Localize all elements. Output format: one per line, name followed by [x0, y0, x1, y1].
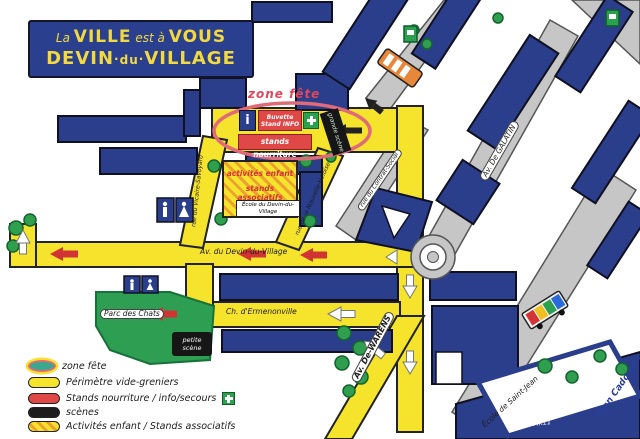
legend-label: Stands nourriture / info/secours: [66, 393, 216, 404]
activites-swatch: [28, 421, 60, 432]
stands-swatch: [28, 393, 60, 404]
title-word: VILLAGE: [144, 48, 236, 69]
legend-item-zone-fete: zone fête: [28, 360, 106, 372]
title-word: VOUS: [169, 27, 226, 47]
legend-item-perimetre: Périmètre vide-greniers: [28, 377, 178, 388]
buvette-stand-info-box: Buvette Stand INFO: [258, 110, 302, 131]
title-line-2: DEVIN·du·VILLAGE: [30, 48, 252, 69]
title-word: DEVIN: [46, 48, 114, 69]
legend-item-scenes: scènes: [28, 407, 99, 418]
festival-map-poster: La VILLE est à VOUS DEVIN·du·VILLAGE zon…: [0, 0, 640, 439]
legend-label: scènes: [66, 407, 99, 418]
buvette-line1: Buvette: [259, 114, 301, 121]
legend-label: Périmètre vide-greniers: [66, 377, 178, 388]
title-word: du: [120, 53, 139, 67]
cross-bar: [225, 397, 233, 400]
street-label-devin: Av. du Devin-du-Village: [200, 248, 287, 256]
yellow-roads: [10, 106, 424, 439]
legend-label: Activités enfant / Stands associatifs: [66, 421, 235, 432]
title-line-1: La VILLE est à VOUS: [30, 27, 252, 47]
stands-nourriture-box: stands nourriture: [238, 134, 312, 150]
green-cross-icon: [303, 112, 319, 129]
street-label-ermenonville: Ch. d'Ermenonville: [226, 308, 297, 316]
legend-item-activites: Activités enfant / Stands associatifs: [28, 421, 235, 432]
cross-bar: [307, 119, 316, 122]
petite-scene-line1: petite: [172, 336, 212, 344]
poster-title: La VILLE est à VOUS DEVIN·du·VILLAGE: [28, 20, 254, 78]
legend-item-stands: Stands nourriture / info/secours: [28, 392, 235, 405]
building-notch: [436, 352, 462, 384]
ecole-devin-label: École du Devin-du-Village: [236, 200, 300, 217]
title-word: VILLE: [74, 27, 132, 47]
scenes-swatch: [28, 407, 60, 418]
zone-fete-label: zone fête: [248, 88, 320, 101]
title-word: est à: [135, 31, 165, 45]
petite-scene-box: petite scène: [172, 332, 212, 356]
zone-fete-swatch: [28, 360, 56, 372]
petite-scene-line2: scène: [172, 344, 212, 352]
legend-label: zone fête: [62, 361, 106, 372]
title-word: La: [56, 31, 70, 45]
activites-line1: activités enfant: [227, 169, 294, 178]
perimetre-swatch: [28, 377, 60, 388]
buvette-line2: Stand INFO: [259, 121, 301, 128]
green-cross-icon: [222, 392, 235, 405]
roundabout: [411, 235, 455, 279]
info-point-icon: i: [239, 110, 256, 131]
parc-des-chats-label: Parc des Chats: [100, 309, 164, 319]
